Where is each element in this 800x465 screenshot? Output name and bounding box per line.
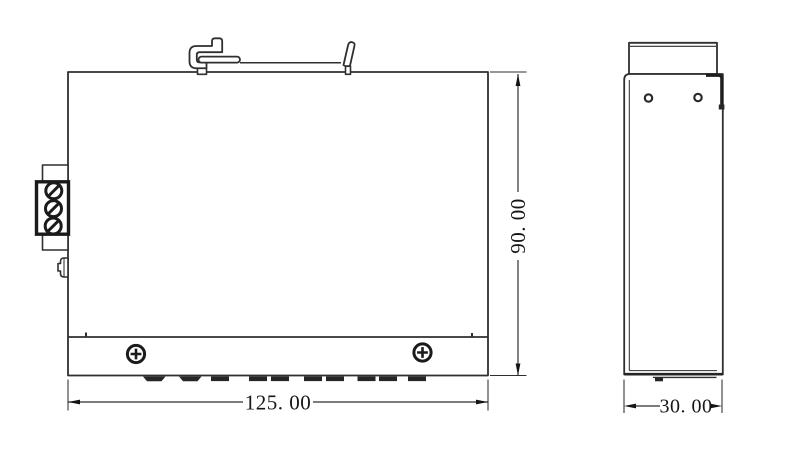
height-dimension-label: 90. 00: [506, 198, 530, 254]
bottom-tab: [379, 377, 397, 382]
bottom-tab: [358, 377, 376, 382]
bottom-tab: [249, 377, 267, 382]
phillips-screw-icon: [414, 344, 431, 361]
terminal-screw-icon: [46, 183, 62, 199]
clip-right-foot: [346, 66, 351, 74]
terminal-screw-icon: [46, 201, 62, 217]
clip-latch-bar: [199, 57, 241, 63]
arrowhead-down-icon: [516, 364, 521, 376]
bottom-foot: [143, 377, 166, 382]
front-body-outline: [68, 72, 488, 376]
bottom-tab: [326, 377, 344, 382]
arrowhead-left-icon: [68, 400, 80, 405]
side-body-outline: [624, 74, 723, 375]
clip-release-lever: [344, 42, 355, 66]
side-top-cap: [629, 43, 717, 74]
depth-dimension-label: 30. 00: [660, 396, 713, 418]
mounting-hole-icon: [645, 94, 652, 101]
mounting-hole-icon: [694, 94, 701, 101]
ground-lug: [58, 258, 68, 277]
bottom-tab: [271, 377, 289, 382]
bottom-tab: [211, 377, 229, 382]
width-dimension-label: 125. 00: [245, 391, 312, 415]
dimension-height: 90. 00: [490, 72, 530, 376]
clip-left-hook: [190, 38, 223, 68]
terminal-block: [37, 165, 69, 250]
drawing-canvas: 90. 00 125. 00 30.: [0, 0, 800, 465]
din-rail-clip: [190, 38, 355, 74]
terminal-screw-icon: [45, 218, 61, 234]
front-view: [37, 38, 489, 381]
arrowhead-up-icon: [516, 74, 521, 86]
bottom-tab: [408, 377, 426, 382]
clip-left-foot: [198, 68, 207, 74]
phillips-screw-icon: [127, 345, 144, 362]
side-bottom-tab: [655, 377, 663, 381]
arrowhead-left-icon: [624, 404, 636, 409]
side-view: [624, 43, 724, 382]
arrowhead-right-icon: [476, 400, 488, 405]
dimension-width: 125. 00: [68, 380, 488, 415]
technical-drawing: 90. 00 125. 00 30.: [0, 0, 800, 465]
dimension-depth: 30. 00: [624, 380, 722, 418]
bottom-tabs: [143, 377, 426, 382]
bottom-tab: [304, 377, 322, 382]
bottom-foot: [179, 377, 202, 382]
